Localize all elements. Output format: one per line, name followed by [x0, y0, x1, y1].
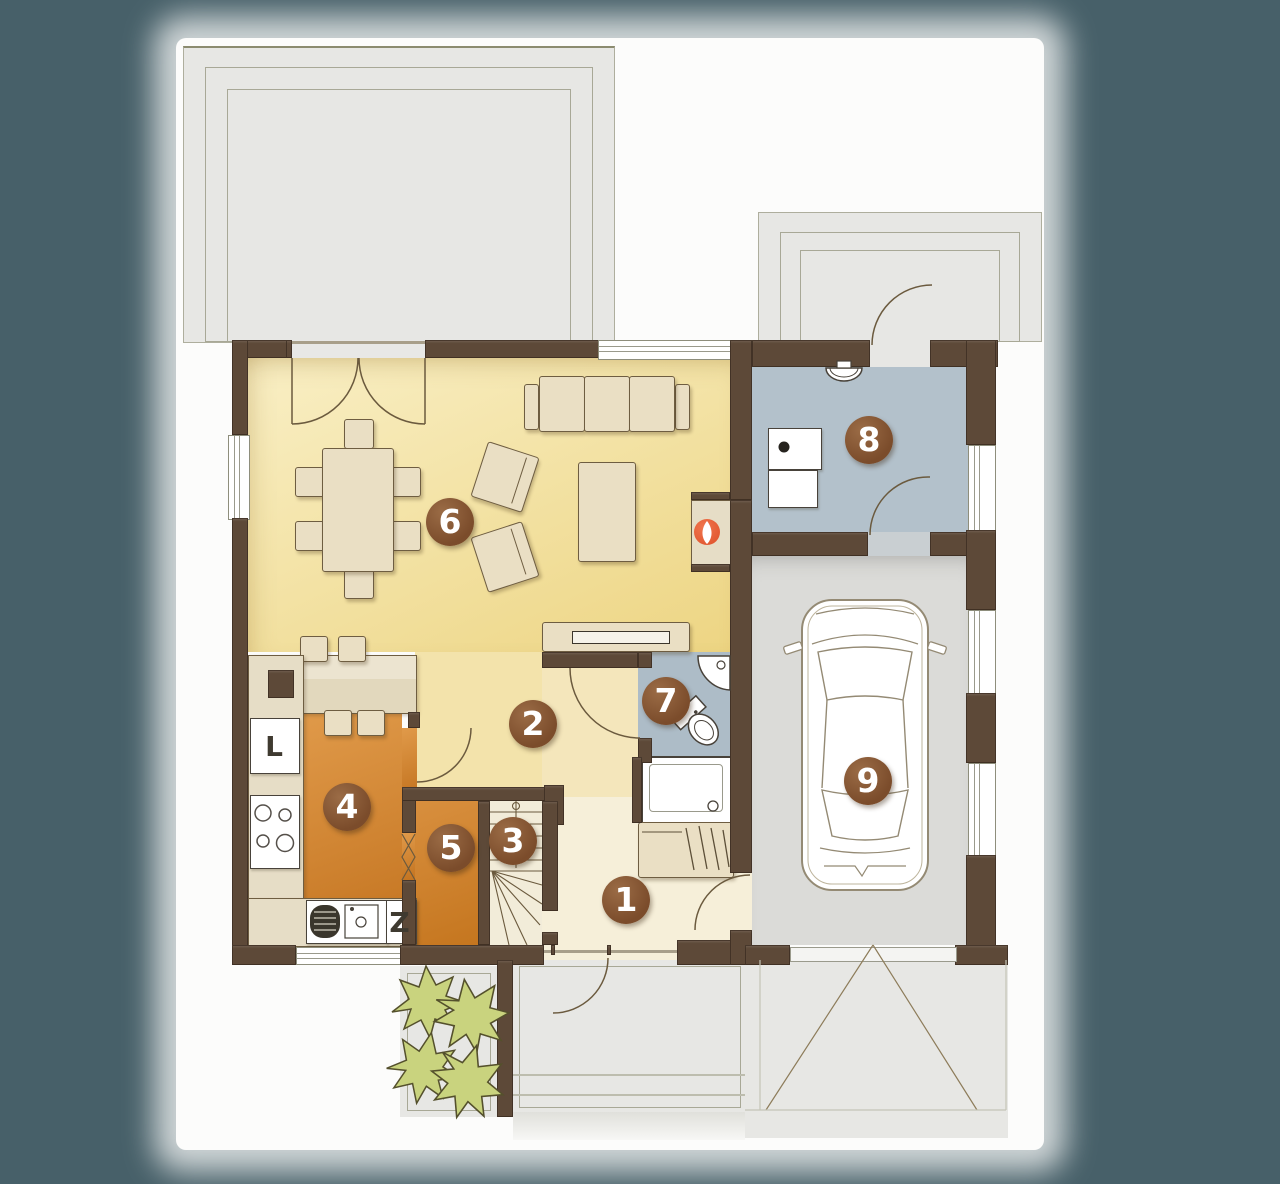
room-badge-7: 7	[642, 677, 690, 725]
pass-through-icon	[402, 834, 415, 880]
room-badge-9: 9	[844, 757, 892, 805]
room-badge-1: 1	[602, 876, 650, 924]
corner-washbasin-icon	[698, 656, 730, 690]
cooktop-burners-icon	[255, 805, 294, 852]
car-icon	[783, 600, 947, 890]
washing-machine-door-icon	[779, 442, 790, 453]
room-badge-5: 5	[427, 824, 475, 872]
room-badge-4: 4	[323, 783, 371, 831]
fridge-label: L	[250, 730, 298, 763]
floor-plan-canvas: 1 2 3 4 5 6 7 8 9 L Z	[0, 0, 1280, 1184]
room-badge-3: 3	[489, 817, 537, 865]
shower-drain-icon	[708, 801, 718, 811]
wardrobe-hangers-icon	[642, 826, 729, 870]
utility-sink-icon	[826, 361, 862, 381]
garage-door-swing-icon	[745, 945, 1006, 1110]
dishwasher-label: Z	[384, 906, 415, 939]
room-badge-8: 8	[845, 416, 893, 464]
plan-lines-overlay	[0, 0, 1280, 1184]
room-badge-2: 2	[509, 700, 557, 748]
sink-drainer-icon	[310, 905, 378, 938]
shrub-icon	[380, 963, 525, 1132]
room-badge-6: 6	[426, 498, 474, 546]
flame-icon	[702, 521, 711, 544]
